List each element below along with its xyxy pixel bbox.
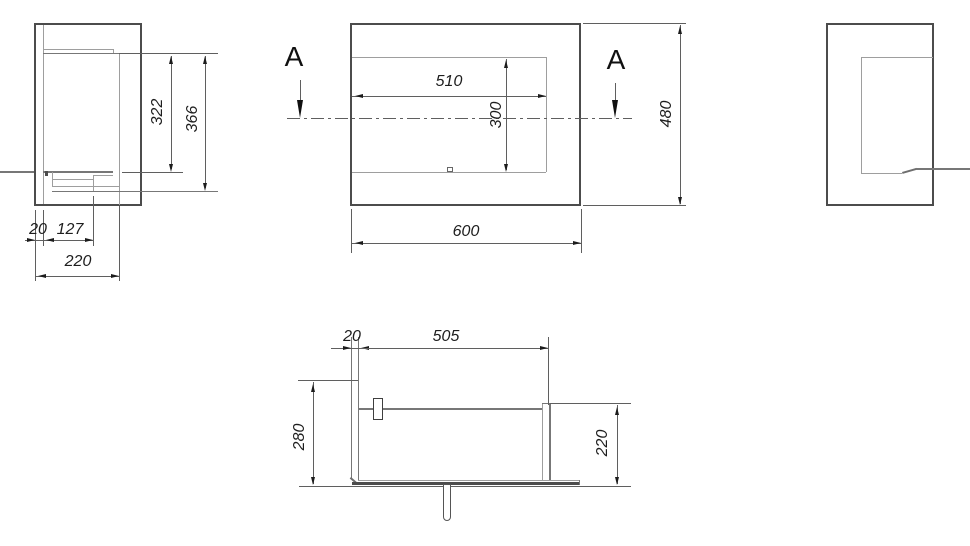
dimension-line <box>205 56 206 188</box>
dim-arrow <box>352 241 363 245</box>
outline-box <box>350 23 581 206</box>
extension-line <box>583 205 686 206</box>
extension-line <box>581 209 582 253</box>
object-line <box>861 57 862 173</box>
opening-right-line <box>546 57 547 172</box>
extension-line <box>122 172 183 173</box>
dim-label-600: 600 <box>453 224 480 240</box>
object-line <box>43 53 119 54</box>
front-view: A A 510 300 600 480 <box>0 0 970 546</box>
extension-line <box>119 206 120 281</box>
burner-notch <box>447 167 453 172</box>
object-line <box>93 175 113 176</box>
dim-arrow <box>504 164 508 175</box>
dim-arrow <box>538 94 549 98</box>
shelf-line <box>43 171 113 173</box>
section-arrow-line <box>300 80 301 101</box>
extension-line <box>550 403 631 404</box>
dimension-line <box>617 405 618 484</box>
dim-arrow <box>35 274 46 278</box>
section-arrow-down <box>297 100 303 121</box>
dim-label-127: 127 <box>57 222 84 238</box>
dim-label-300: 300 <box>489 102 505 129</box>
technical-drawing-canvas: 322 366 20 127 220 A A <box>0 0 970 546</box>
shelf-line <box>358 408 542 410</box>
dim-label-322: 322 <box>150 99 166 126</box>
extension-line <box>299 486 631 487</box>
dim-arrow <box>111 274 122 278</box>
dimension-line <box>331 348 369 349</box>
object-line <box>43 25 44 204</box>
dim-arrow <box>85 238 96 242</box>
dimension-line <box>352 243 581 244</box>
extension-line <box>298 380 358 381</box>
dim-arrow <box>678 23 682 34</box>
dim-arrow <box>615 404 619 415</box>
dimension-line <box>171 56 172 169</box>
dimension-line <box>25 240 93 241</box>
object-line <box>52 186 119 187</box>
dimension-line <box>506 59 507 170</box>
burner-handle <box>373 398 383 420</box>
right-wall-line <box>542 403 543 480</box>
section-arrow-down <box>612 100 618 121</box>
dim-arrow <box>504 57 508 68</box>
dim-arrow <box>311 477 315 488</box>
object-line <box>861 173 902 174</box>
dim-label-220: 220 <box>595 430 611 457</box>
dimension-line <box>313 382 314 484</box>
base-plate <box>352 482 579 485</box>
dimension-line <box>358 348 548 349</box>
dim-arrow <box>540 346 551 350</box>
object-line <box>52 191 218 192</box>
right-wall-line <box>549 403 551 480</box>
left-wall-line <box>358 337 359 481</box>
drain-stub <box>443 484 451 521</box>
left-wall-line <box>351 337 352 478</box>
side-view-left: 322 366 20 127 220 <box>0 0 970 546</box>
base-plate-end <box>579 480 580 485</box>
dim-arrow <box>358 346 369 350</box>
dim-label-20: 20 <box>343 329 361 345</box>
dim-label-20: 20 <box>29 222 47 238</box>
extension-line <box>35 210 36 281</box>
dim-arrow <box>573 241 584 245</box>
wall-stub-line <box>916 168 970 170</box>
extension-line <box>43 210 44 246</box>
outline-box <box>34 23 142 206</box>
extension-line <box>119 53 218 54</box>
base-plate-top <box>358 480 579 481</box>
dim-label-220: 220 <box>65 254 92 270</box>
dim-arrow <box>203 53 207 64</box>
outline-box <box>826 23 934 206</box>
section-arrow-line <box>615 83 616 101</box>
extension-line <box>93 196 94 246</box>
section-view-a-a: 20 505 280 220 <box>0 0 970 546</box>
detail-tick <box>45 171 48 176</box>
dim-arrow <box>203 183 207 194</box>
dim-label-505: 505 <box>433 329 460 345</box>
section-label-right: A <box>607 46 626 74</box>
dimension-line <box>680 25 681 204</box>
wall-stub-line <box>0 171 34 173</box>
dimension-line <box>352 96 546 97</box>
dim-arrow <box>343 346 354 350</box>
object-line <box>113 49 114 53</box>
dimension-line <box>35 276 119 277</box>
object-line <box>52 172 53 186</box>
dim-arrow <box>169 53 173 64</box>
dim-label-366: 366 <box>185 106 201 133</box>
dim-arrow <box>615 477 619 488</box>
opening-bottom-line <box>352 172 546 173</box>
dim-arrow <box>43 238 54 242</box>
dim-label-510: 510 <box>436 74 463 90</box>
side-view-right <box>0 0 970 546</box>
centerline <box>287 118 632 119</box>
object-line <box>52 179 93 180</box>
dim-label-480: 480 <box>659 101 675 128</box>
object-line <box>119 53 120 205</box>
section-label-left: A <box>285 43 304 71</box>
dim-arrow <box>678 197 682 208</box>
right-wall-cap <box>542 403 550 404</box>
extension-line <box>583 23 686 24</box>
object-line <box>861 57 933 58</box>
dim-arrow <box>169 164 173 175</box>
dim-arrow <box>352 94 363 98</box>
dim-arrow <box>27 238 38 242</box>
object-line <box>93 175 94 192</box>
chamfer-line <box>350 477 358 484</box>
dim-arrow <box>311 381 315 392</box>
dim-label-280: 280 <box>292 424 308 451</box>
extension-line <box>351 209 352 253</box>
chamfer-line <box>902 168 916 173</box>
extension-line <box>548 337 549 405</box>
opening-top-line <box>352 57 546 58</box>
object-line <box>43 49 113 50</box>
